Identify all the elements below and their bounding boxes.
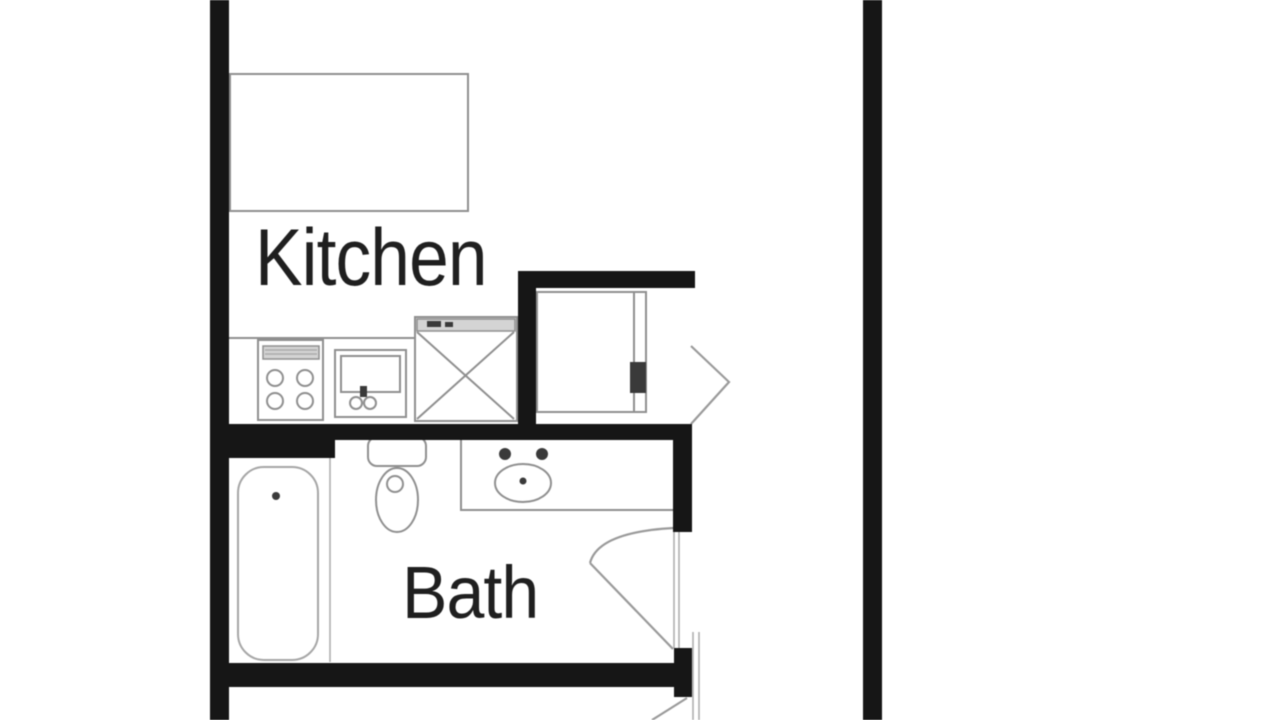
burner xyxy=(297,393,313,409)
kitchen-faucet xyxy=(360,386,367,397)
closet-outline xyxy=(537,292,646,412)
kitchen-sink-basin xyxy=(341,356,400,392)
toilet-bowl xyxy=(376,468,418,532)
vanity-sink xyxy=(461,438,674,510)
closet-top-wall xyxy=(518,271,695,288)
bath-room-label: Bath xyxy=(402,556,538,630)
kitchen-sink xyxy=(335,350,406,417)
toilet-tank xyxy=(368,437,426,466)
bath-top-wall-block xyxy=(228,440,335,458)
stove-4-burner xyxy=(258,340,323,420)
left-exterior-wall xyxy=(210,0,229,720)
bath-bottom-wall xyxy=(228,663,692,687)
x-box-outline xyxy=(415,317,517,421)
bath-door-leaf xyxy=(590,563,673,649)
bathroom-sink-drain xyxy=(520,478,527,485)
floor-plan: Kitchen Bath xyxy=(0,0,1280,720)
bath-top-wall xyxy=(228,424,692,440)
kitchen-sink-outline xyxy=(335,350,406,417)
kitchen-faucet-knob xyxy=(364,397,376,409)
kitchen-door-swing xyxy=(691,346,729,424)
kitchen-room-label: Kitchen xyxy=(255,218,487,299)
closet-door-handle xyxy=(630,362,646,393)
burner xyxy=(267,393,283,409)
x-box-header-mark xyxy=(427,321,441,327)
floor-plan-linework xyxy=(0,0,1280,720)
closet-left-wall xyxy=(518,271,536,440)
toilet-flush xyxy=(387,476,403,492)
refrigerator-closet xyxy=(537,292,646,412)
bathtub-drain xyxy=(272,492,280,500)
toilet xyxy=(368,437,426,532)
x-box-header-mark xyxy=(445,322,453,327)
appliance-x-box xyxy=(415,317,517,421)
kitchen-island-counter xyxy=(230,74,468,211)
bathroom-faucet-handle xyxy=(499,448,511,460)
walls xyxy=(210,0,882,720)
vanity-counter xyxy=(461,438,674,510)
bath-door-arc xyxy=(590,528,674,563)
stove-control-panel xyxy=(263,346,319,359)
burner xyxy=(267,370,283,386)
bath-right-wall xyxy=(673,424,692,532)
right-exterior-wall xyxy=(863,0,882,720)
lower-room-door-leaf xyxy=(652,698,687,720)
kitchen-faucet-knob xyxy=(350,397,362,409)
bathroom-faucet-handle xyxy=(536,448,548,460)
burner xyxy=(297,370,313,386)
